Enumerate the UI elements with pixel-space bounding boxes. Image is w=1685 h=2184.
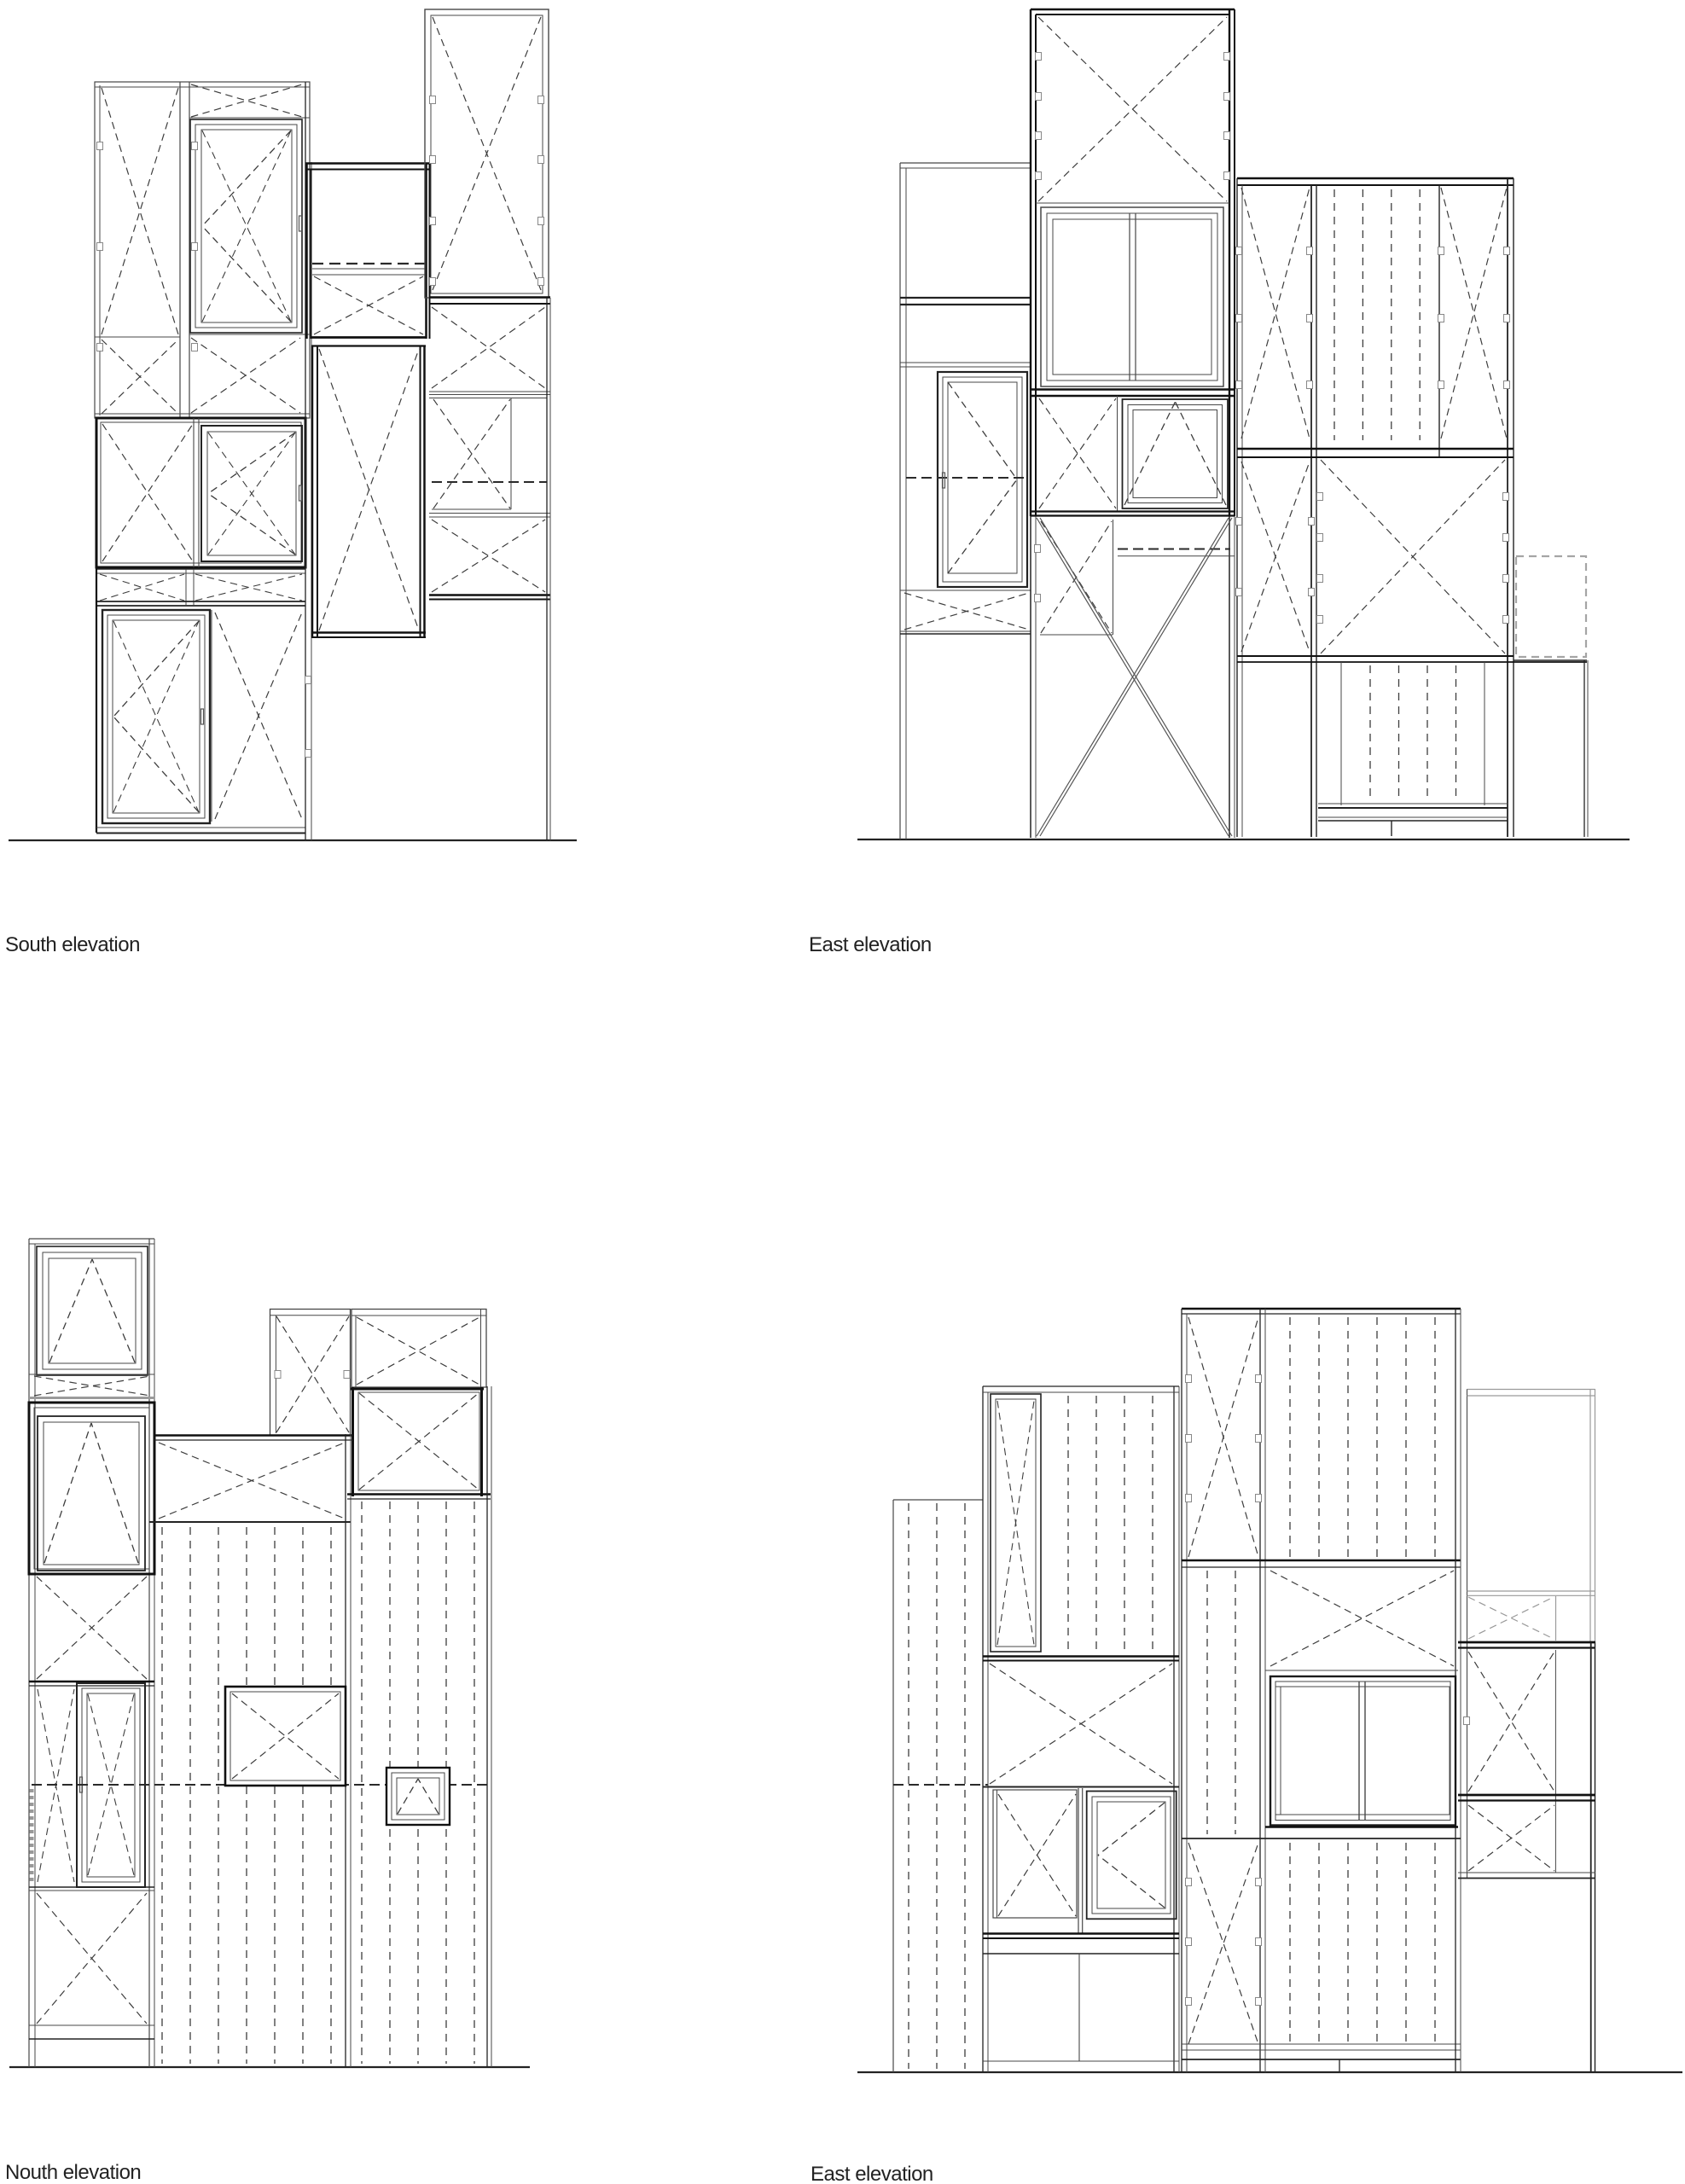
svg-text:Nouth elevation: Nouth elevation [5,2161,141,2184]
svg-text:South elevation: South elevation [5,933,140,956]
svg-text:East elevation: East elevation [811,2163,933,2184]
svg-text:East elevation: East elevation [809,933,932,956]
